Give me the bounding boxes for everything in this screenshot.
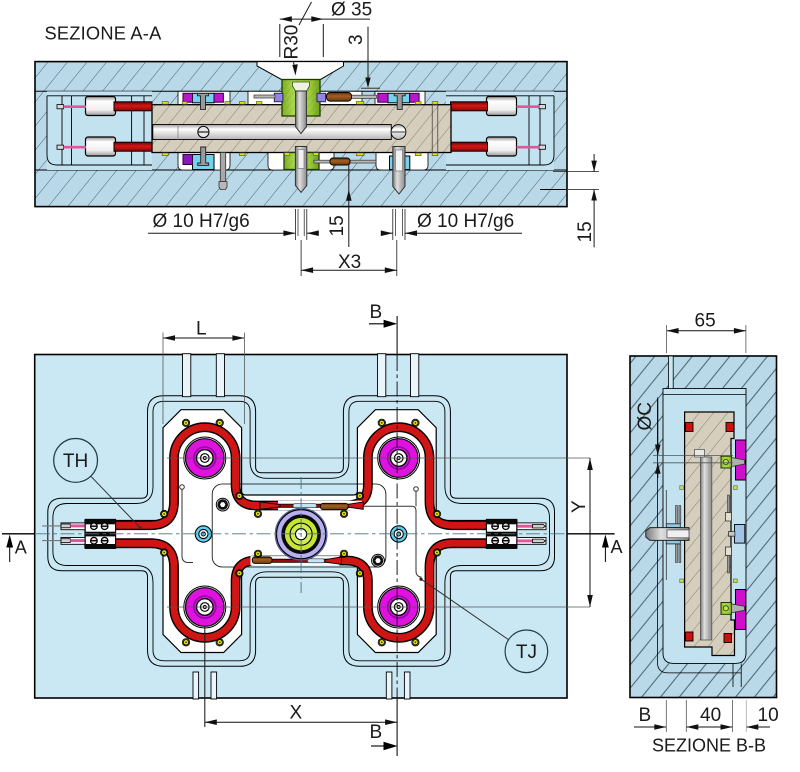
- svg-text:TH: TH: [63, 451, 88, 472]
- svg-text:TJ: TJ: [516, 642, 537, 663]
- svg-text:L: L: [196, 319, 207, 340]
- svg-text:15: 15: [327, 215, 348, 236]
- svg-text:B: B: [639, 705, 652, 726]
- svg-text:Y: Y: [569, 500, 590, 513]
- svg-text:Ø 35: Ø 35: [331, 0, 372, 21]
- svg-text:X: X: [290, 703, 303, 724]
- svg-text:40: 40: [700, 705, 721, 726]
- svg-text:Ø 10 H7/g6: Ø 10 H7/g6: [153, 211, 250, 232]
- svg-text:SEZIONE A-A: SEZIONE A-A: [45, 23, 163, 44]
- svg-text:65: 65: [695, 311, 716, 332]
- svg-text:15: 15: [575, 221, 596, 242]
- svg-text:SEZIONE B-B: SEZIONE B-B: [652, 736, 766, 756]
- svg-text:ØC: ØC: [635, 402, 656, 431]
- svg-text:A: A: [611, 537, 623, 557]
- svg-text:B: B: [370, 722, 383, 743]
- svg-text:B: B: [370, 302, 383, 323]
- svg-text:R30: R30: [282, 25, 303, 60]
- svg-text:Ø 10 H7/g6: Ø 10 H7/g6: [417, 211, 514, 232]
- svg-text:3: 3: [346, 34, 367, 45]
- svg-text:10: 10: [758, 705, 779, 726]
- svg-text:A: A: [15, 538, 27, 558]
